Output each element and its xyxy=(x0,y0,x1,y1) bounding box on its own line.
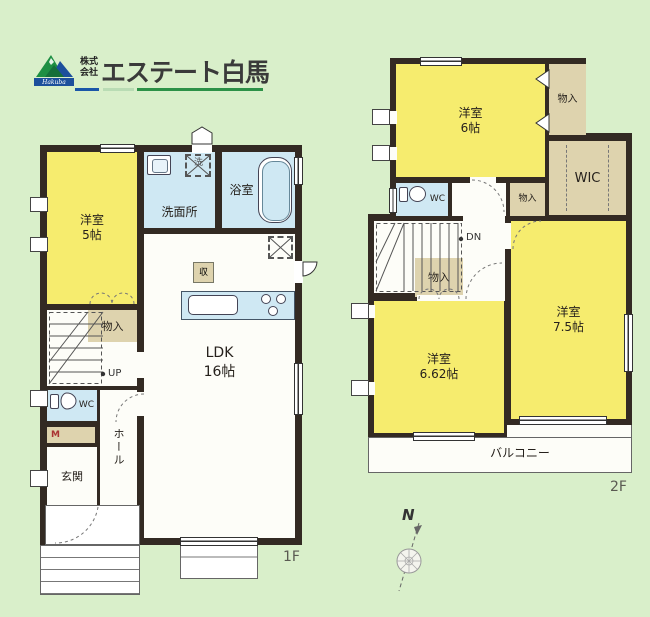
floor2-hall-mid xyxy=(463,216,505,301)
wic-hanger-rail-2 xyxy=(608,145,609,211)
door-gap-storage-mid xyxy=(417,295,463,301)
floor1-stair-corridor xyxy=(103,342,137,386)
logo-script-text: Hakuba xyxy=(42,79,66,86)
wic-hanger-rail-1 xyxy=(566,145,567,211)
laundry-mark: 洗 xyxy=(194,158,203,168)
logo-underline-blue xyxy=(75,88,99,91)
meter-box-label: M xyxy=(51,430,60,440)
floor1-ldk: LDK 16帖 xyxy=(144,234,295,538)
floor1-western-room-label: 洋室 5帖 xyxy=(80,213,104,243)
floor1-label: 1F xyxy=(283,549,300,565)
floor2-toilet-label: WC xyxy=(430,192,445,207)
wallgap-2f-b xyxy=(389,147,397,160)
casement-window-2f-d xyxy=(351,380,369,396)
window-2f-room662-bottom xyxy=(413,432,475,441)
casement-window-1f-wc xyxy=(30,390,48,407)
casement-window-1f-entrance xyxy=(30,470,48,487)
washbasin-bowl xyxy=(152,159,168,173)
floor2-wic-label: WIC xyxy=(575,171,601,186)
compass-icon xyxy=(397,523,422,591)
floor2-western-room-662-label: 洋室 6.62帖 xyxy=(420,352,459,382)
logo-underline-green xyxy=(137,88,263,91)
floor1-entrance-label: 玄関 xyxy=(61,469,83,484)
window-1f-ldk-right xyxy=(294,363,303,415)
window-2f-room75-bottom xyxy=(519,416,607,425)
toilet-tank-2f xyxy=(399,187,408,202)
floor-plan-page: Hakuba 株式 会社 エステート白馬 洋室 5帖 洗面所 洗 浴室 LDK … xyxy=(0,0,650,617)
floor2-storage-mid: 物入 xyxy=(415,258,463,297)
bathtub-inner xyxy=(262,161,290,221)
door-gap-stair-ldk xyxy=(137,352,144,378)
floor1-western-room: 洋室 5帖 xyxy=(47,152,137,304)
stove-burner-3 xyxy=(268,306,278,316)
floor2-label: 2F xyxy=(610,479,627,495)
logo-prefix-line1: 株式 xyxy=(80,57,98,67)
casement-window-2f-c xyxy=(351,303,369,319)
door-gap-room6-hall xyxy=(470,177,496,183)
backdoor-leaf-1f-top xyxy=(192,127,212,144)
washbasin xyxy=(147,155,171,175)
floor1-washroom-label: 洗面所 xyxy=(161,205,197,220)
casement-window-2f-a xyxy=(372,109,390,125)
floor2-western-room-6-label: 洋室 6帖 xyxy=(458,106,482,136)
floor2-western-room-662: 洋室 6.62帖 xyxy=(374,301,504,433)
floor1-ldk-label: LDK 16帖 xyxy=(204,344,236,382)
floor2-storage-mid-label: 物入 xyxy=(428,270,450,285)
floor2-western-room-75: 洋室 7.5帖 xyxy=(511,221,626,419)
stairs-down-label: DN xyxy=(466,232,481,243)
kitchen-sink xyxy=(188,295,238,315)
logo-prefix-line2: 会社 xyxy=(80,68,98,78)
floor2-storage-top: 物入 xyxy=(549,64,586,135)
wallgap-2f-a xyxy=(389,111,397,124)
window-1f-bath-right xyxy=(294,157,303,185)
floor1-storage-label: 物入 xyxy=(102,319,124,334)
window-1f-ldk-bottom xyxy=(180,537,258,546)
casement-window-1f-a xyxy=(30,197,48,212)
backdoor-gap-1f xyxy=(192,144,212,153)
floor2-western-room-6: 洋室 6帖 xyxy=(396,64,545,177)
floor1-meter-box: M xyxy=(47,427,95,443)
ldk-terrace xyxy=(180,545,258,579)
logo-script-band: Hakuba xyxy=(34,78,74,86)
floor2-hall-top xyxy=(452,183,506,216)
company-name: エステート白馬 xyxy=(101,53,269,89)
mountain-logo-icon xyxy=(34,50,78,80)
porch-steps xyxy=(40,545,140,595)
window-2f-room6-top xyxy=(420,57,462,66)
backdoor-leaf-ldk-right xyxy=(303,262,317,276)
compass-north-label: N xyxy=(402,506,415,524)
floor1-hall-label: ホール xyxy=(111,428,126,467)
closet-mark: 収 xyxy=(199,268,208,278)
logo-underline-lightgreen xyxy=(103,88,134,91)
door-gap-hall-ldk xyxy=(137,392,144,416)
toilet-tank-1f xyxy=(50,394,59,409)
floor1-entrance: 玄関 xyxy=(47,447,97,505)
backdoor-gap-ldk-right xyxy=(294,261,303,283)
balcony-label: バルコニー xyxy=(430,444,610,461)
floor1-storage: 物入 xyxy=(88,310,137,342)
window-2f-wc-left xyxy=(389,188,397,213)
floor2-storage-hall: 物入 xyxy=(510,183,545,216)
company-logo: Hakuba 株式 会社 エステート白馬 xyxy=(0,0,300,100)
stairs-up-label: UP xyxy=(108,368,121,379)
floor2-wic: WIC xyxy=(549,141,626,215)
floor2-western-room-75-label: 洋室 7.5帖 xyxy=(553,305,584,335)
closet-mark-box: 収 xyxy=(193,262,214,283)
toilet-bowl-2f xyxy=(409,186,426,202)
floor1-toilet-label: WC xyxy=(79,398,94,413)
bathtub xyxy=(258,157,292,223)
floor2-storage-top-label: 物入 xyxy=(558,92,578,107)
stove-burner-1 xyxy=(261,294,271,304)
entrance-porch xyxy=(45,505,140,545)
floor2-storage-hall-label: 物入 xyxy=(518,192,536,207)
casement-window-1f-b xyxy=(30,237,48,252)
floor1-hall: ホール xyxy=(100,390,137,505)
ac-space-1f xyxy=(268,236,293,259)
stove-burner-2 xyxy=(276,294,286,304)
door-gap-room75-hall xyxy=(505,223,511,249)
window-2f-room75-right xyxy=(624,314,633,372)
casement-window-2f-b xyxy=(372,145,390,161)
floor1-bathroom-label: 浴室 xyxy=(229,183,253,198)
window-1f-westroom-top xyxy=(100,144,135,153)
